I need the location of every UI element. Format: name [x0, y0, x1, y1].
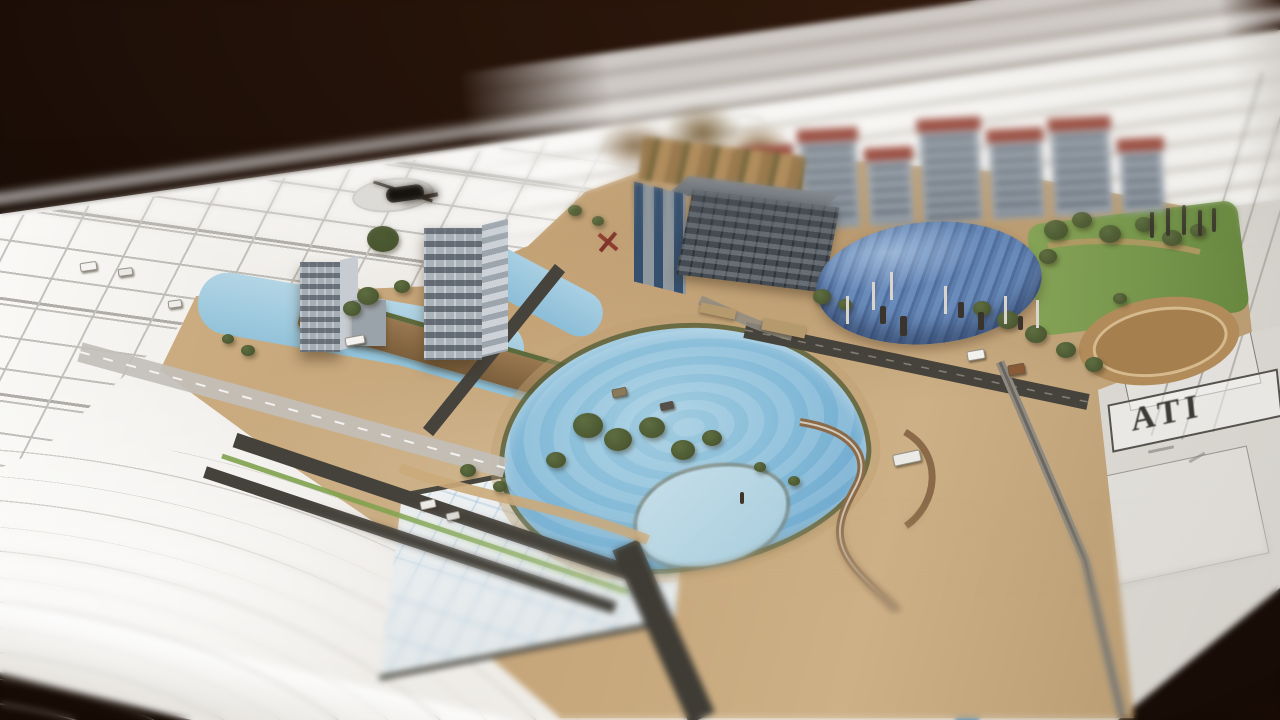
scene-architectural-model-photo: ATI	[0, 0, 1280, 720]
vignette	[0, 0, 1280, 720]
